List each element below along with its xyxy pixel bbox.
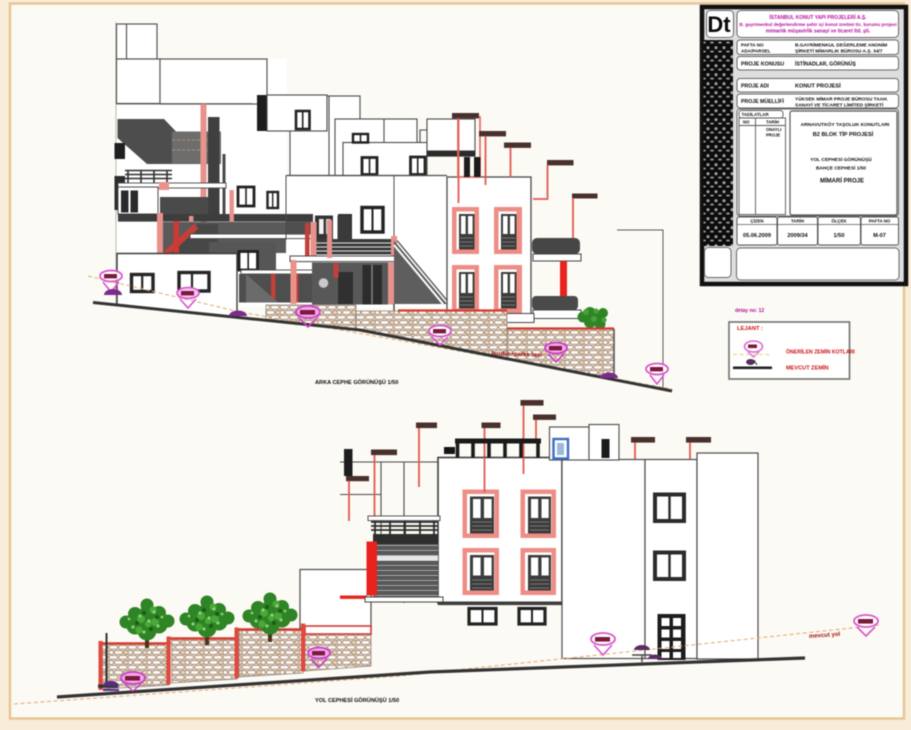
svg-text:ONAYLI: ONAYLI [766, 127, 781, 132]
svg-text:MİMARİ PROJE: MİMARİ PROJE [820, 178, 864, 185]
svg-text:YOL CEPHESİ GÖRÜNÜŞÜ: YOL CEPHESİ GÖRÜNÜŞÜ [810, 156, 872, 163]
svg-text:05.06.2009: 05.06.2009 [743, 233, 771, 239]
svg-text:detay no: 12: detay no: 12 [735, 308, 764, 314]
svg-text:TARİH: TARİH [791, 219, 804, 224]
svg-text:TADİLATLAR: TADİLATLAR [742, 112, 770, 117]
svg-text:İSTANBUL KONUT YAPI PROJELERİ: İSTANBUL KONUT YAPI PROJELERİ A.Ş. [769, 14, 867, 21]
svg-text:B. gayrimenkul değerlendirme ş: B. gayrimenkul değerlendirme şehir içi k… [739, 22, 896, 27]
svg-text:YÜKSEK MİMAR PROJE BÜROSU TAAH: YÜKSEK MİMAR PROJE BÜROSU TAAH. [795, 96, 888, 103]
svg-text:SANAYİ VE TİCARET LİMİTED ŞİRK: SANAYİ VE TİCARET LİMİTED ŞİRKETİ [795, 102, 884, 109]
svg-text:Dt: Dt [707, 12, 731, 37]
svg-text:PAFTA NO: PAFTA NO [869, 219, 891, 224]
svg-text:NO: NO [743, 120, 750, 125]
svg-text:PROJE MÜELLİFİ: PROJE MÜELLİFİ [741, 98, 785, 105]
svg-text:B2 BLOK TİP PROJESİ: B2 BLOK TİP PROJESİ [813, 131, 874, 138]
svg-text:ADA/PARSEL: ADA/PARSEL [741, 49, 771, 54]
svg-text:ARKA CEPHE GÖRÜNÜŞÜ 1/50: ARKA CEPHE GÖRÜNÜŞÜ 1/50 [315, 379, 398, 386]
svg-text:ÇİZEN: ÇİZEN [750, 219, 763, 224]
svg-text:1/50: 1/50 [834, 233, 845, 239]
svg-text:2009/34: 2009/34 [787, 233, 808, 239]
svg-text:M-07: M-07 [873, 233, 886, 239]
svg-text:ARNAVUTKÖY TAŞOLUK KONUTLARI: ARNAVUTKÖY TAŞOLUK KONUTLARI [801, 121, 890, 128]
svg-text:YOL CEPHESİ GÖRÜNÜŞÜ 1/50: YOL CEPHESİ GÖRÜNÜŞÜ 1/50 [315, 697, 399, 704]
svg-text:LEJANT :: LEJANT : [737, 326, 763, 332]
svg-text:ÖLÇEK: ÖLÇEK [831, 219, 847, 224]
svg-text:İSTİNADLAR, GÖRÜNÜŞ: İSTİNADLAR, GÖRÜNÜŞ [795, 61, 856, 68]
svg-text:ŞİRKETİ MİMARLIK BÜROSU A.Ş. 3: ŞİRKETİ MİMARLIK BÜROSU A.Ş. 34/7 [795, 48, 883, 55]
svg-text:PROJE ADI: PROJE ADI [741, 84, 769, 90]
svg-text:KONUT PROJESİ: KONUT PROJESİ [795, 83, 841, 90]
svg-text:PAFTA NO: PAFTA NO [741, 43, 764, 48]
svg-text:BAHÇE CEPHESİ 1/50: BAHÇE CEPHESİ 1/50 [816, 165, 866, 172]
svg-text:mimarlık müşavirlik sanayi ve: mimarlık müşavirlik sanayi ve ticaret lt… [766, 29, 871, 35]
svg-text:PROJE: PROJE [766, 133, 780, 138]
svg-text:PROJE KONUSU: PROJE KONUSU [741, 62, 784, 68]
svg-text:MEVCUT ZEMİN: MEVCUT ZEMİN [786, 365, 829, 372]
svg-text:ÖNERİLEN ZEMİN KOTLARI: ÖNERİLEN ZEMİN KOTLARI [786, 349, 855, 356]
svg-text:TARİH: TARİH [766, 120, 779, 125]
